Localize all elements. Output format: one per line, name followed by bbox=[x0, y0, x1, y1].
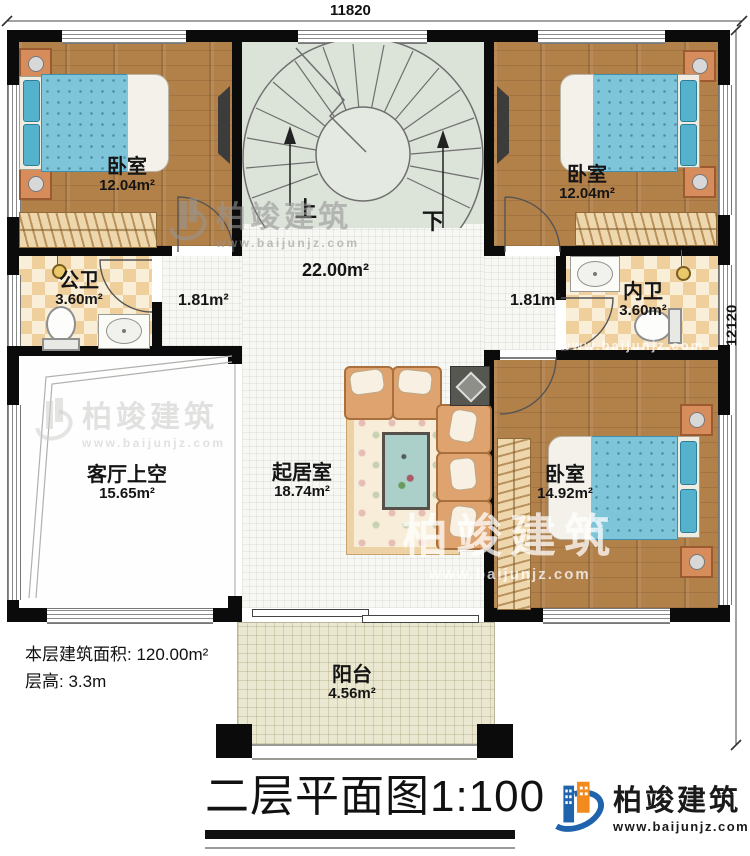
label-public-bathroom: 公卫 3.60m² bbox=[29, 270, 129, 309]
title-block: 二层平面图1:100 bbox=[205, 760, 515, 849]
room-name: 公卫 bbox=[29, 270, 129, 292]
balcony-sliding-door-leaf-2 bbox=[362, 615, 479, 623]
plan-title-text: 二层平面图 bbox=[205, 772, 430, 821]
label-corridor-left-area: 1.81m² bbox=[178, 292, 229, 310]
dimension-right: 12120 bbox=[724, 291, 741, 361]
shower-hose bbox=[57, 256, 58, 266]
stair-up-label: 上 bbox=[295, 192, 317, 224]
label-corridor-right-area: 1.81m² bbox=[510, 292, 561, 310]
window-top-left-bedroom bbox=[62, 30, 186, 44]
room-area: 12.04m² bbox=[67, 178, 187, 195]
plan-title: 二层平面图1:100 bbox=[205, 760, 515, 824]
shower-hose bbox=[681, 250, 682, 266]
stair-down-label: 下 bbox=[422, 204, 444, 236]
balcony-sliding-door-leaf-1 bbox=[252, 609, 369, 617]
wall-bedroom2-bottom-right bbox=[560, 246, 730, 256]
wall-stair-left bbox=[232, 42, 242, 246]
balcony-column-left bbox=[216, 724, 252, 758]
title-underline-thin bbox=[205, 847, 515, 849]
bed-pillow bbox=[23, 124, 40, 166]
brand-logo: 柏竣建筑 www.baijunjz.com bbox=[545, 774, 749, 836]
room-name: 卧室 bbox=[527, 164, 647, 186]
room-area: 3.60m² bbox=[29, 292, 129, 309]
plan-notes: 本层建筑面积: 120.00m² 层高: 3.3m bbox=[25, 641, 208, 695]
title-underline-thick bbox=[205, 830, 515, 839]
dimension-top: 11820 bbox=[330, 2, 371, 19]
corner-table bbox=[450, 366, 490, 406]
balcony-rail bbox=[252, 744, 477, 760]
window-stairwell bbox=[298, 30, 427, 44]
stair-zone bbox=[242, 42, 484, 224]
window-bottom-bedroom bbox=[543, 608, 670, 624]
room-area: 4.56m² bbox=[292, 686, 412, 703]
label-bedroom-top-left: 卧室 12.04m² bbox=[67, 156, 187, 195]
nightstand bbox=[683, 166, 716, 198]
wall-void-stub-bottom bbox=[228, 596, 242, 608]
room-name: 内卫 bbox=[593, 281, 693, 303]
window-right-bedroom-bottom bbox=[718, 415, 732, 605]
window-top-right-bedroom bbox=[538, 30, 665, 44]
balcony-column-right bbox=[477, 724, 513, 758]
room-name: 客厅上空 bbox=[57, 464, 197, 486]
nightstand bbox=[680, 546, 713, 578]
bed-pillow bbox=[680, 80, 697, 122]
sink-basin bbox=[106, 318, 142, 344]
coffee-table bbox=[382, 432, 430, 510]
brand-name: 柏竣建筑 bbox=[613, 777, 749, 819]
floor-plan-canvas: 11820 12120 卧室 12.04m² 卧室 12.04m² 卧室 14.… bbox=[0, 0, 750, 856]
bed-pillow bbox=[680, 489, 697, 533]
bed-pillow bbox=[680, 441, 697, 485]
window-left-void bbox=[7, 405, 21, 600]
room-name: 阳台 bbox=[292, 664, 412, 686]
watermark-site: www.baijunjz.com bbox=[402, 566, 618, 583]
label-balcony: 阳台 4.56m² bbox=[292, 664, 412, 703]
label-family-room: 起居室 18.74m² bbox=[242, 462, 362, 501]
room-name: 卧室 bbox=[505, 464, 625, 486]
tv-unit bbox=[218, 86, 230, 164]
toilet bbox=[46, 306, 76, 342]
tv-unit bbox=[497, 86, 509, 164]
room-area: 15.65m² bbox=[57, 486, 197, 503]
window-right-bedroom-top bbox=[718, 85, 732, 215]
room-area: 3.60m² bbox=[593, 303, 693, 320]
watermark-name: 柏竣建筑 bbox=[402, 500, 618, 566]
note-floor-height: 层高: 3.3m bbox=[25, 668, 208, 695]
nightstand bbox=[19, 168, 52, 200]
plan-title-scale: 1:100 bbox=[430, 772, 545, 821]
bed-pillow bbox=[23, 80, 40, 122]
wall-bedroom1-bottom-stub bbox=[232, 246, 242, 256]
window-left-bathroom bbox=[7, 275, 21, 350]
brand-website: www.baijunjz.com bbox=[613, 819, 749, 834]
bed-blanket bbox=[560, 74, 594, 172]
label-ensuite-bathroom: 内卫 3.60m² bbox=[593, 281, 693, 320]
bed-mattress bbox=[592, 74, 678, 172]
window-bottom-void bbox=[47, 608, 213, 624]
wall-stair-right bbox=[484, 42, 494, 246]
room-area: 18.74m² bbox=[242, 484, 362, 501]
room-name: 起居室 bbox=[242, 462, 362, 484]
wall-void-stub-top bbox=[228, 352, 242, 364]
toilet-tank bbox=[42, 338, 80, 351]
brand-logo-icon bbox=[545, 774, 607, 836]
wall-bedroom2-bottom-left bbox=[484, 246, 505, 256]
bed-pillow bbox=[680, 124, 697, 166]
wardrobe bbox=[575, 212, 717, 246]
room-name: 卧室 bbox=[67, 156, 187, 178]
wardrobe bbox=[19, 212, 157, 248]
shower-head bbox=[676, 266, 691, 281]
watermark-right-mid: www.baijunjz.com bbox=[560, 338, 704, 353]
nightstand bbox=[680, 404, 713, 436]
label-hall-area: 22.00m² bbox=[302, 260, 369, 281]
label-bedroom-bottom-right: 卧室 14.92m² bbox=[505, 464, 625, 503]
sofa-pillow bbox=[397, 368, 433, 395]
sofa-pillow bbox=[448, 457, 477, 492]
label-bedroom-top-right: 卧室 12.04m² bbox=[527, 164, 647, 203]
note-floor-area: 本层建筑面积: 120.00m² bbox=[25, 641, 208, 668]
wall-public-bath-right bbox=[152, 302, 162, 352]
watermark-bottom-right: 柏竣建筑 www.baijunjz.com bbox=[402, 500, 618, 583]
room-area: 12.04m² bbox=[527, 186, 647, 203]
label-living-void: 客厅上空 15.65m² bbox=[57, 464, 197, 503]
